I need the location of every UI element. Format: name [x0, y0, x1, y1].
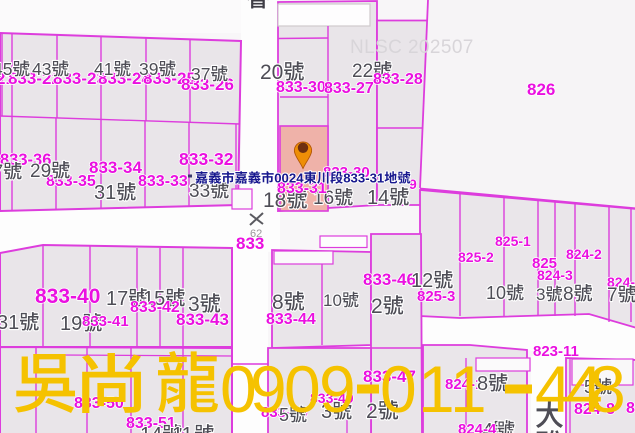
- svg-text:833-42: 833-42: [130, 299, 180, 316]
- svg-text:833-32: 833-32: [179, 149, 234, 169]
- svg-text:833-43: 833-43: [176, 310, 229, 329]
- svg-text:29: 29: [30, 161, 51, 182]
- svg-text:833-34: 833-34: [89, 158, 142, 177]
- svg-text:NLSC 202507: NLSC 202507: [350, 37, 474, 58]
- svg-text:448: 448: [535, 352, 626, 426]
- svg-text:7: 7: [607, 285, 618, 306]
- svg-text:2: 2: [366, 400, 378, 423]
- svg-text:2: 2: [371, 295, 383, 318]
- svg-text:0024: 0024: [274, 171, 304, 186]
- svg-text:833-31: 833-31: [343, 171, 384, 186]
- svg-text:14: 14: [140, 424, 162, 433]
- svg-text:10: 10: [323, 291, 342, 310]
- svg-text:11: 11: [172, 424, 193, 433]
- svg-text:31: 31: [94, 182, 116, 204]
- svg-text:011: 011: [380, 352, 487, 426]
- svg-text:833-44: 833-44: [266, 311, 316, 328]
- svg-text:10: 10: [486, 283, 506, 303]
- svg-text:37: 37: [191, 64, 210, 84]
- svg-text:27: 27: [0, 162, 3, 183]
- svg-text:833-28: 833-28: [373, 71, 423, 88]
- svg-text:833-46: 833-46: [363, 270, 416, 289]
- svg-text:14: 14: [367, 187, 389, 209]
- svg-text:824-3: 824-3: [537, 267, 573, 283]
- svg-text:833-27: 833-27: [324, 80, 374, 97]
- svg-text:22: 22: [352, 61, 373, 82]
- svg-text:8: 8: [626, 400, 635, 417]
- svg-text:8: 8: [563, 284, 574, 305]
- svg-text:17: 17: [106, 288, 128, 310]
- svg-text:825-1: 825-1: [495, 233, 531, 249]
- svg-text:825-3: 825-3: [417, 288, 455, 305]
- svg-text:833-30: 833-30: [276, 79, 326, 96]
- svg-text:3: 3: [536, 285, 545, 304]
- svg-text:824-2: 824-2: [566, 246, 602, 262]
- svg-text:0909: 0909: [220, 352, 356, 426]
- svg-text:833-35: 833-35: [46, 173, 96, 190]
- svg-text:833: 833: [236, 234, 264, 253]
- svg-text:43: 43: [32, 59, 51, 79]
- svg-text:19: 19: [60, 313, 82, 335]
- svg-text:833-41: 833-41: [82, 313, 129, 330]
- svg-text:31: 31: [0, 312, 19, 334]
- svg-text:41: 41: [94, 59, 113, 79]
- svg-text:833-33: 833-33: [138, 173, 188, 190]
- svg-text:826: 826: [527, 80, 555, 99]
- svg-text:45: 45: [0, 59, 12, 79]
- svg-text:39: 39: [139, 59, 158, 79]
- svg-text:825-2: 825-2: [458, 249, 494, 265]
- svg-text:833-40: 833-40: [35, 285, 100, 308]
